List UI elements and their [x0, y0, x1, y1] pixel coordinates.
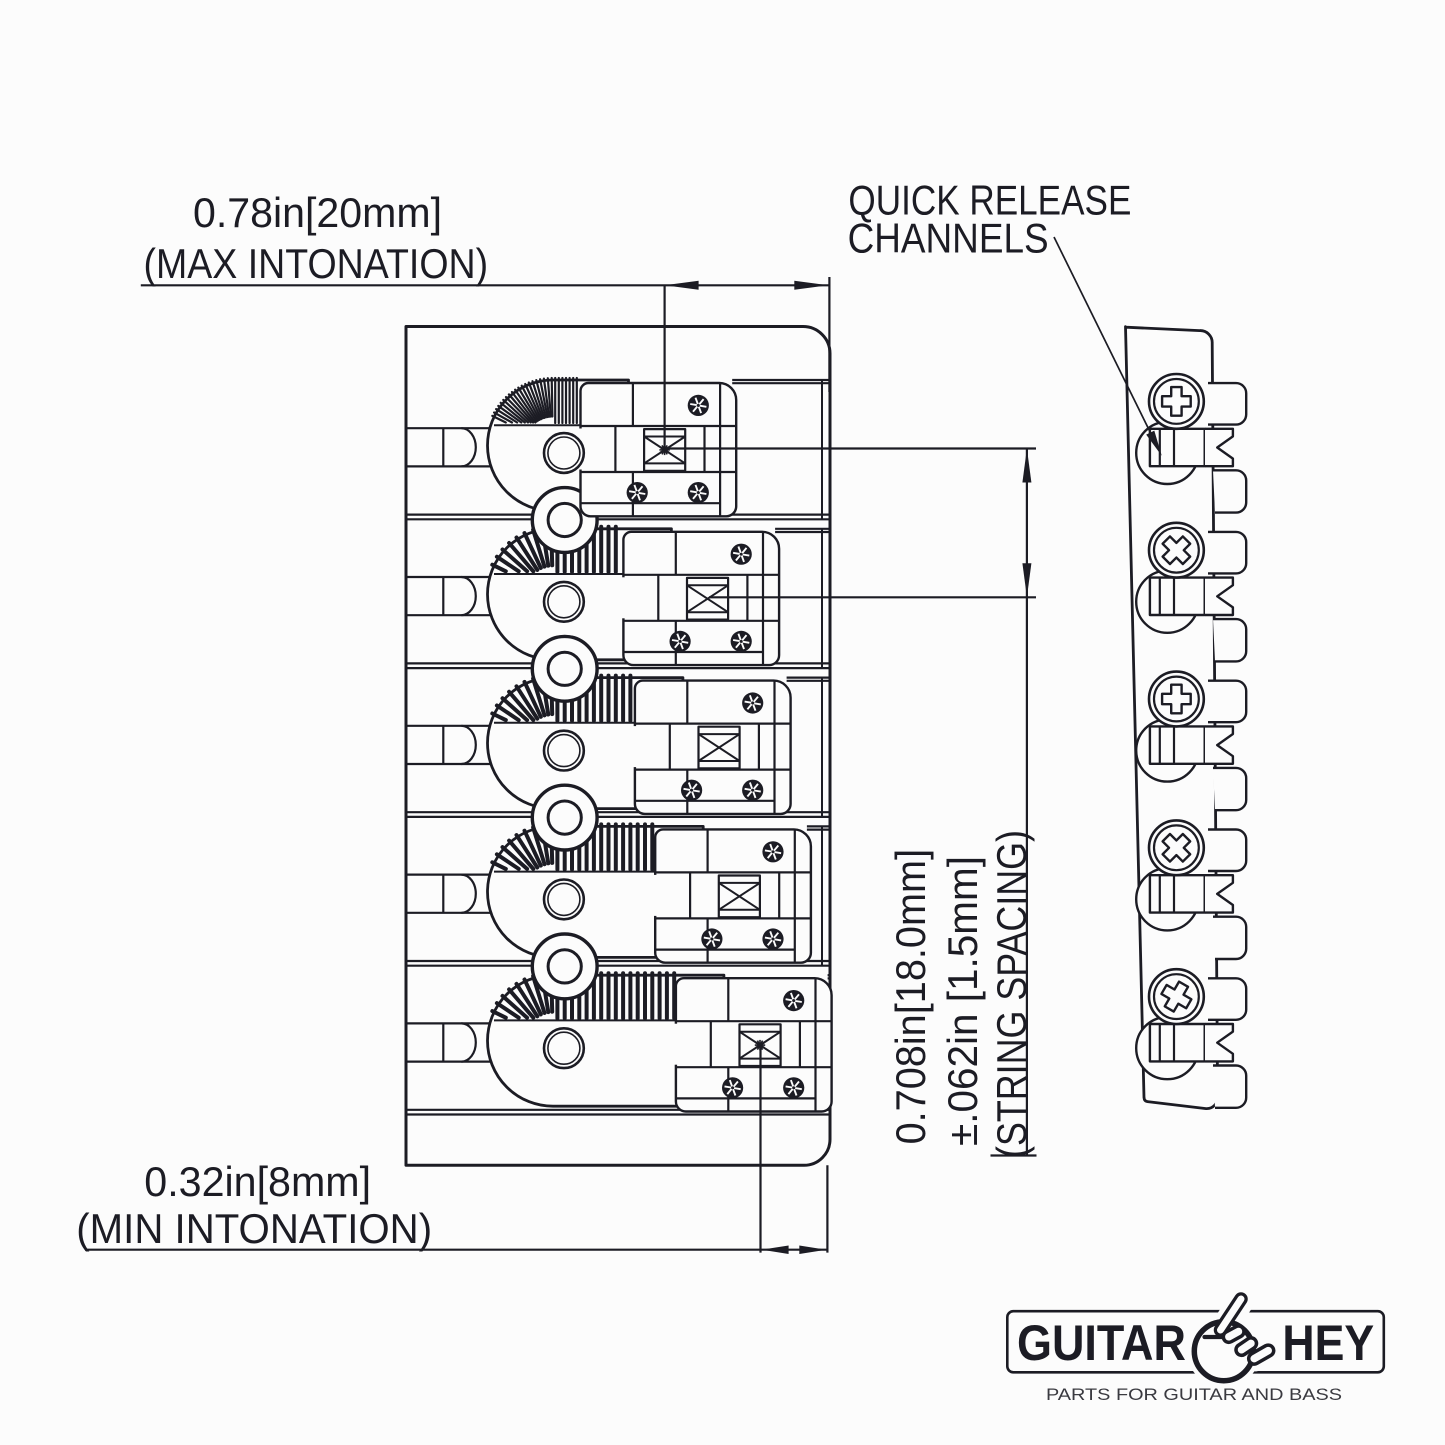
svg-text:0.78in[20mm]: 0.78in[20mm] [193, 189, 442, 236]
svg-text:PARTS FOR GUITAR AND BASS: PARTS FOR GUITAR AND BASS [1046, 1385, 1342, 1404]
svg-text:(MAX INTONATION): (MAX INTONATION) [144, 240, 489, 287]
svg-text:(MIN INTONATION): (MIN INTONATION) [76, 1205, 432, 1252]
svg-text:(STRING SPACING): (STRING SPACING) [988, 830, 1035, 1158]
svg-text:CHANNELS: CHANNELS [848, 215, 1049, 262]
svg-text:HEY: HEY [1282, 1315, 1374, 1371]
svg-text:GUITAR: GUITAR [1017, 1315, 1186, 1371]
svg-text:0.32in[8mm]: 0.32in[8mm] [144, 1158, 371, 1205]
svg-text:±.062in [1.5mm]: ±.062in [1.5mm] [939, 856, 986, 1146]
svg-text:0.708in[18.0mm]: 0.708in[18.0mm] [887, 849, 934, 1145]
